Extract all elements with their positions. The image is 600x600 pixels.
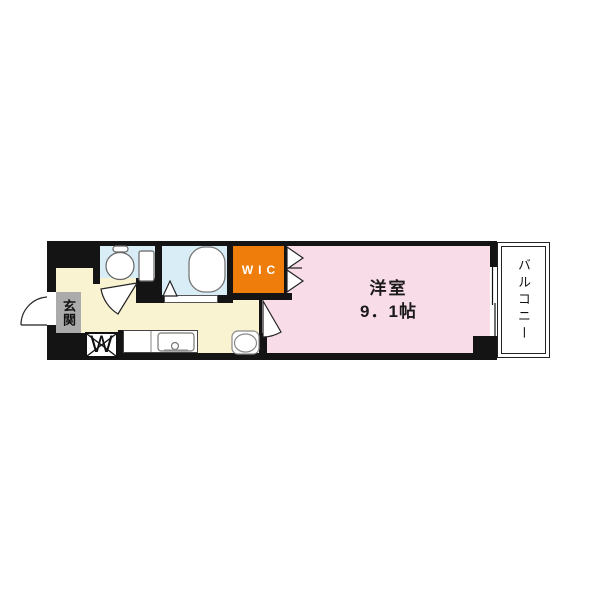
toilet-room-floor xyxy=(100,246,155,278)
wic-bottom-wall xyxy=(227,293,292,300)
main-room-label-block: 洋室 9．1帖 xyxy=(287,279,490,321)
main-room-size: 9．1帖 xyxy=(287,302,490,321)
kitchen-room-wall-block xyxy=(259,333,267,360)
bathroom-sill xyxy=(164,295,218,303)
balcony-label: バルコニー xyxy=(514,258,533,343)
entrance-label: 玄関 xyxy=(59,299,78,327)
wic-label: WIC xyxy=(237,263,280,277)
entry-door-opening xyxy=(46,292,56,325)
entry-door-swing-icon xyxy=(21,297,47,325)
floor-plan-canvas: 玄関 WIC W バルコニー 洋室 9．1帖 xyxy=(0,0,600,600)
corner-pillar xyxy=(473,336,497,360)
toilet-bath-divider-wall xyxy=(155,241,162,303)
washer-label-box: W xyxy=(85,332,118,358)
main-room-name: 洋室 xyxy=(287,279,490,298)
balcony-label-box: バルコニー xyxy=(497,242,550,358)
entrance-genkan-box: 玄関 xyxy=(56,292,81,333)
kitchen-counter xyxy=(123,330,198,353)
sliding-window-opening xyxy=(490,267,497,338)
bathroom-floor xyxy=(162,246,227,295)
wic-closet: WIC xyxy=(233,246,284,293)
wall-under-entrance xyxy=(47,333,85,360)
toilet-left-wall xyxy=(93,268,100,284)
washer-label: W xyxy=(90,333,113,357)
